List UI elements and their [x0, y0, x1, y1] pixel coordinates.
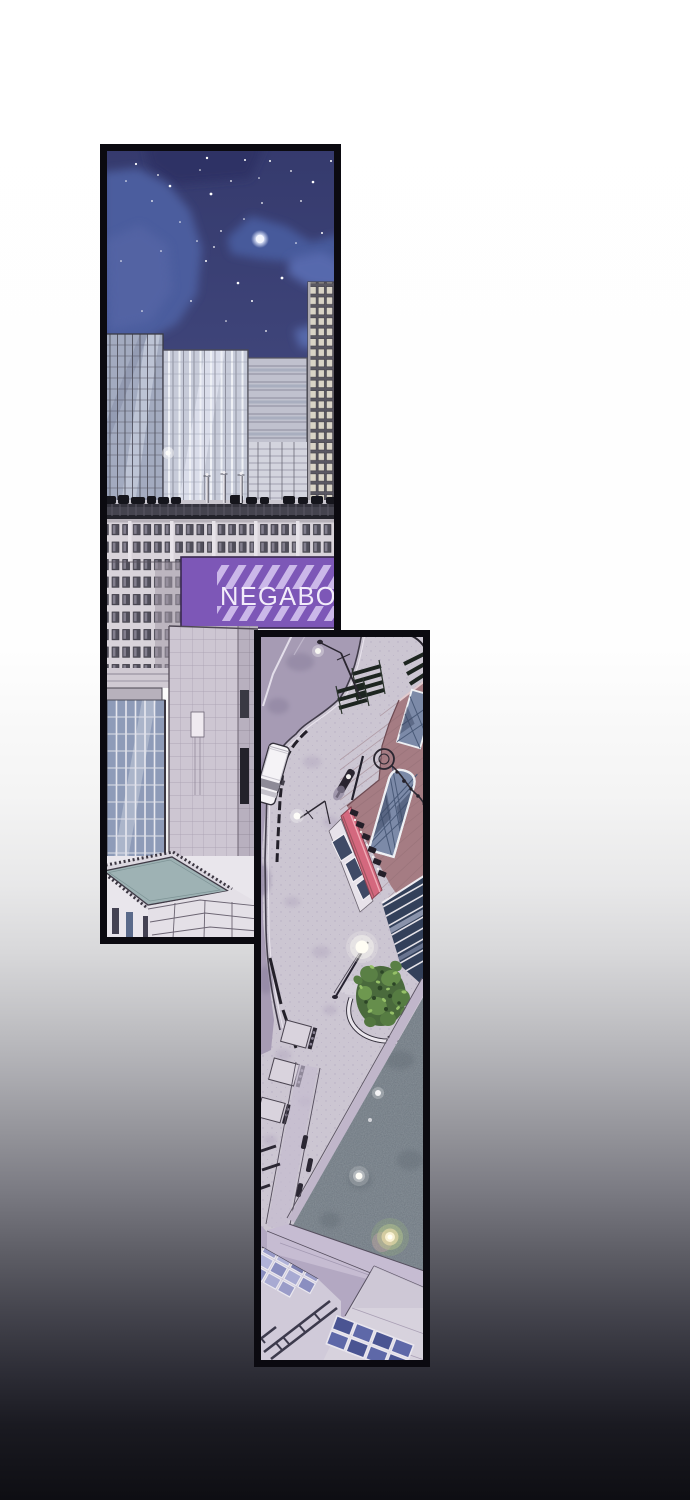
svg-text:NEGABO: NEGABO: [220, 583, 337, 611]
